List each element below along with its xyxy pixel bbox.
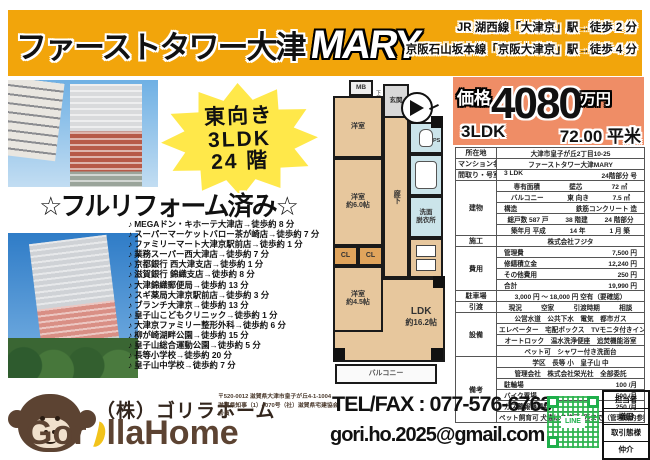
spec-cell: 7.5 ㎡ [613,192,631,202]
closet: CL [333,246,358,266]
spec-cell: 100 /月 [616,379,637,389]
spec-cell: 修繕積立金 [504,258,537,268]
room-label: 洋室 [351,194,365,202]
spec-row-value: ペット可 シャワー付き洗面台 [497,346,645,357]
spec-cell: 38 階建 [565,214,587,224]
spec-cell: 12,240 円 [608,258,637,268]
real-estate-flyer: ファーストタワー大津 MARY JR 湖西線「大津京」駅→徒歩 2 分 京阪石山… [0,0,650,460]
spec-row: 設備公営水道 公共下水 電気 都市ガス [456,313,645,324]
spec-cell: 東 向き [567,192,589,202]
spec-row-label: マンション名 [456,159,497,170]
spec-row-value: オートロック 温水洗浄便座 追焚機能浴室 [497,335,645,346]
spec-row: 引渡現況空家引渡時期相談 [456,302,645,313]
spec-cell: 合計 [504,280,517,290]
agent-name: 増田 [604,409,648,426]
note-icon: ♪ [128,330,132,340]
station-access: JR 湖西線「大津京」駅→徒歩 2 分 京阪石山坂本線「京阪大津京」駅→徒歩 4… [406,18,637,62]
washroom: 洗面 脱衣所 [409,196,443,238]
facility-item: ♪MEGAドン・キホーテ大津店→徒歩約 8 分 [128,219,342,229]
area-value: 72.00 平米 [560,122,641,147]
spec-row-value: 駐輪場100 /月 [497,379,645,390]
note-icon: ♪ [128,239,132,249]
spec-cell: 駐輪場 [504,379,524,389]
neighbor-building [8,80,65,161]
nearby-facilities-list: ♪MEGAドン・キホーテ大津店→徒歩約 8 分♪スーパーマーケットバロー茶が崎店… [128,219,342,370]
facility-item: ♪スギ薬局大津京駅前店→徒歩約 3 分 [128,290,342,300]
facility-item: ♪ファミリーマート大津京駅前店→徒歩約 1 分 [128,239,342,249]
note-icon: ♪ [128,360,132,370]
facility-item: ♪スーパーマーケットバロー茶が崎店→徒歩約 7 分 [128,229,342,239]
pillar [431,348,443,360]
spec-row-value: 公営水道 公共下水 電気 都市ガス [497,313,645,324]
note-icon: ♪ [128,219,132,229]
spec-cell: 築年月 平成 [511,225,546,235]
facility-item: ♪滋賀銀行 錦織支店→徒歩約 8 分 [128,269,342,279]
access-line-1: JR 湖西線「大津京」駅→徒歩 2 分 [406,18,637,40]
spec-row-value: エレベーター 宅配ボックス TVモニタ付きインターホン [497,324,645,335]
spec-cell: 鉄筋コンクリート 造 [576,203,637,213]
access-line-2: 京阪石山坂本線「京阪大津京」駅→徒歩 4 分 [406,40,637,62]
note-icon: ♪ [128,310,132,320]
deal-type-value: 仲介 [604,442,648,459]
page-title: ファーストタワー大津 [16,30,304,65]
spec-table: 所在地大津市皇子が丘2丁目10-25マンション名ファーストタワー大津MARY間取… [455,147,645,423]
bedroom-low: 洋室 約4.5帖 [333,266,383,332]
spec-row-value: 築年月 平成14 年1 月 築 [497,225,645,236]
qr-finder [587,396,599,408]
room-label: 洋室 [351,291,365,299]
badge-facing: 東向き [204,105,274,130]
spec-row-value: 学区 長等 小 皇子山 中 [497,357,645,368]
spec-cell: 相談 [619,302,632,312]
spec-row-value: 管理費7,500 円 [497,247,645,258]
spec-row-value: ファーストタワー大津MARY [497,159,645,170]
mb-label: MB [356,84,366,92]
spec-row-value: 3,000 円 ～ 18,000 円 空有（要確認） [497,291,645,302]
spec-row-value: 専有面積壁芯72 ㎡ [497,181,645,192]
closet-label: CL [341,252,350,260]
facility-item: ♪長等小学校→徒歩約 20 分 [128,350,342,360]
pillar [333,348,345,360]
agent-header: 担当者 [604,392,648,409]
facility-item: ♪京都銀行 西大津支店→徒歩約 1 分 [128,259,342,269]
room-size: 約6.0帖 [346,202,370,210]
spec-row-value: バルコニー東 向き7.5 ㎡ [497,192,645,203]
layout-value: 3LDK [461,122,505,147]
spec-cell: 24 階部分 [605,214,634,224]
facility-item: ♪大津錦織郵便局→徒歩約 13 分 [128,280,342,290]
spec-cell: 総戸数 587 戸 [507,214,548,224]
wash-label: 洗面 [420,209,433,217]
spec-cell: 24階部分 号 [601,170,637,180]
note-icon: ♪ [128,350,132,360]
closet: CL [358,246,383,266]
note-icon: ♪ [128,229,132,239]
spec-row-label: 施工 [456,236,497,247]
banana-icon [85,419,109,449]
line-qr-code: LINE [547,396,599,448]
spec-row: 駐車場3,000 円 ～ 18,000 円 空有（要確認） [456,291,645,302]
qr-finder [547,436,559,448]
pipe-space-label: PS [433,138,440,144]
spec-row: マンション名ファーストタワー大津MARY [456,159,645,170]
spec-row-label: 引渡 [456,302,497,313]
spec-row-label: 建物 [456,181,497,236]
note-icon: ♪ [128,300,132,310]
spec-row-value: 総戸数 587 戸38 階建24 階部分 [497,214,645,225]
building-photo-bottom [8,233,138,378]
wordmark-part1: Gor [26,414,86,452]
spec-row-value: 構造鉄筋コンクリート 造 [497,203,645,214]
spec-row-label: 費用 [456,247,497,291]
deal-type-header: 取引態様 [604,425,648,442]
pillar [433,276,445,288]
note-icon: ♪ [128,249,132,259]
closet-label: CL [366,252,375,260]
spec-cell: その他費用 [504,269,537,279]
building-photo-top [8,80,158,187]
spec-cell: 7,500 円 [612,247,637,257]
spec-row-value: 合計19,990 円 [497,280,645,291]
bathroom [409,154,443,196]
reform-banner: ☆フルリフォーム済み☆ [0,186,336,223]
spec-row-label: 駐車場 [456,291,497,302]
layout-area-line: 3LDK 72.00 平米 [461,122,641,147]
spec-row-value: 管理会社 株式会社栄光社 全部委託 [497,368,645,379]
property-title: ファーストタワー大津 MARY [16,22,419,68]
spec-row-label: 所在地 [456,148,497,159]
qr-finder [547,396,559,408]
note-icon: ♪ [128,320,132,330]
balcony: バルコニー [335,364,437,384]
spec-row: 施工株式会社フジタ [456,236,645,247]
note-icon: ♪ [128,280,132,290]
ldk-label-group: LDK 約16.2帖 [405,306,437,328]
spec-row: 建物専有面積壁芯72 ㎡ [456,181,645,192]
facility-item: ♪ブランチ大津京→徒歩約 13 分 [128,300,342,310]
note-icon: ♪ [128,340,132,350]
spec-row: 費用管理費7,500 円 [456,247,645,258]
feature-starburst: 東向き 3LDK 24 階 [159,80,320,199]
spec-cell: バルコニー [511,192,544,202]
pillar [431,116,443,128]
price-label: 価格 [457,89,491,108]
postal-line: 〒520-0012 滋賀県大津市皇子が丘4-1-1004 [218,393,340,402]
spec-row: 備考学区 長等 小 皇子山 中 [456,357,645,368]
spec-row-label: 間取り・号室 [456,170,497,181]
ldk-label: LDK [405,306,437,317]
spec-cell: 専有面積 [514,181,540,191]
facility-item: ♪柳が崎湖畔公園→徒歩約 15 分 [128,330,342,340]
price-unit: 万円 [581,91,611,108]
facility-item: ♪大津京ファミリー整形外科→徒歩約 6 分 [128,320,342,330]
agent-box: 担当者 増田 取引態様 仲介 [602,390,650,460]
spec-row-label: 設備 [456,313,497,357]
price-value: 4080 [491,79,581,128]
line-label: LINE [561,416,585,428]
spec-cell: 1 月 築 [609,225,630,235]
wash-label2: 脱衣所 [416,217,436,225]
spec-cell: 3 LDK [504,170,523,180]
note-icon: ♪ [128,259,132,269]
wordmark-part2: llaHome [106,414,238,452]
meter-box: MB [349,80,373,96]
spec-row: 所在地大津市皇子が丘2丁目10-25 [456,148,645,159]
hall-label: 廊下 [392,190,400,204]
spec-cell: 引渡時期 [574,302,600,312]
spec-cell: 72 ㎡ [612,181,628,191]
facility-item: ♪皇子山こどもクリニック→徒歩約 1 分 [128,310,342,320]
spec-cell: 250 円 [618,269,637,279]
spec-row-value: 現況空家引渡時期相談 [497,302,645,313]
spec-row: 間取り・号室3 LDK24階部分 号 [456,170,645,181]
trees [8,338,138,378]
header-banner: ファーストタワー大津 MARY JR 湖西線「大津京」駅→徒歩 2 分 京阪石山… [8,10,642,76]
spec-cell: 14 年 [570,225,586,235]
room-label: 洋室 [351,123,365,131]
kitchen [409,238,443,278]
facility-item: ♪皇子山総合運動公園→徒歩約 5 分 [128,340,342,350]
room-size: 約4.5帖 [346,299,370,307]
telfax-number: TEL/FAX : 077-576-6763 [332,392,551,417]
price-box: 価格4080万円 3LDK 72.00 平米 [453,77,644,145]
floor-plan: MB 玄関 下足 洋室 洋室 約6.0帖 CL CL 廊下 PS 洗面 脱衣所 … [333,80,445,386]
spec-cell: 現況 [509,302,522,312]
spec-row-value: その他費用250 円 [497,269,645,280]
spec-cell: 管理費 [504,247,524,257]
badge-floor: 24 階 [211,150,270,175]
facility-item: ♪業務スーパー西大津店→徒歩約 7 分 [128,249,342,259]
bedroom-mid: 洋室 約6.0帖 [333,158,383,246]
wordmark-logo: GorllaHome [26,414,239,453]
bedroom-top: 洋室 [333,96,383,158]
spec-cell: 19,990 円 [608,280,637,290]
balcony-label: バルコニー [369,370,404,378]
spec-row-value: 株式会社フジタ [497,236,645,247]
facility-item: ♪皇子山中学校→徒歩約 7 分 [128,360,342,370]
hallway: 廊下 [383,116,409,278]
compass-icon [401,92,433,124]
email-address: gori.ho.2025@gmail.com [330,424,544,447]
ldk-size: 約16.2帖 [405,317,437,328]
spec-cell: 空家 [541,302,554,312]
note-icon: ♪ [128,269,132,279]
tower-photo [70,84,142,187]
spec-row-value: 大津市皇子が丘2丁目10-25 [497,148,645,159]
spec-row-value: 3 LDK24階部分 号 [497,170,645,181]
note-icon: ♪ [128,290,132,300]
spec-row-value: 修繕積立金12,240 円 [497,258,645,269]
spec-cell: 壁芯 [569,181,582,191]
spec-cell: 構造 [504,203,517,213]
